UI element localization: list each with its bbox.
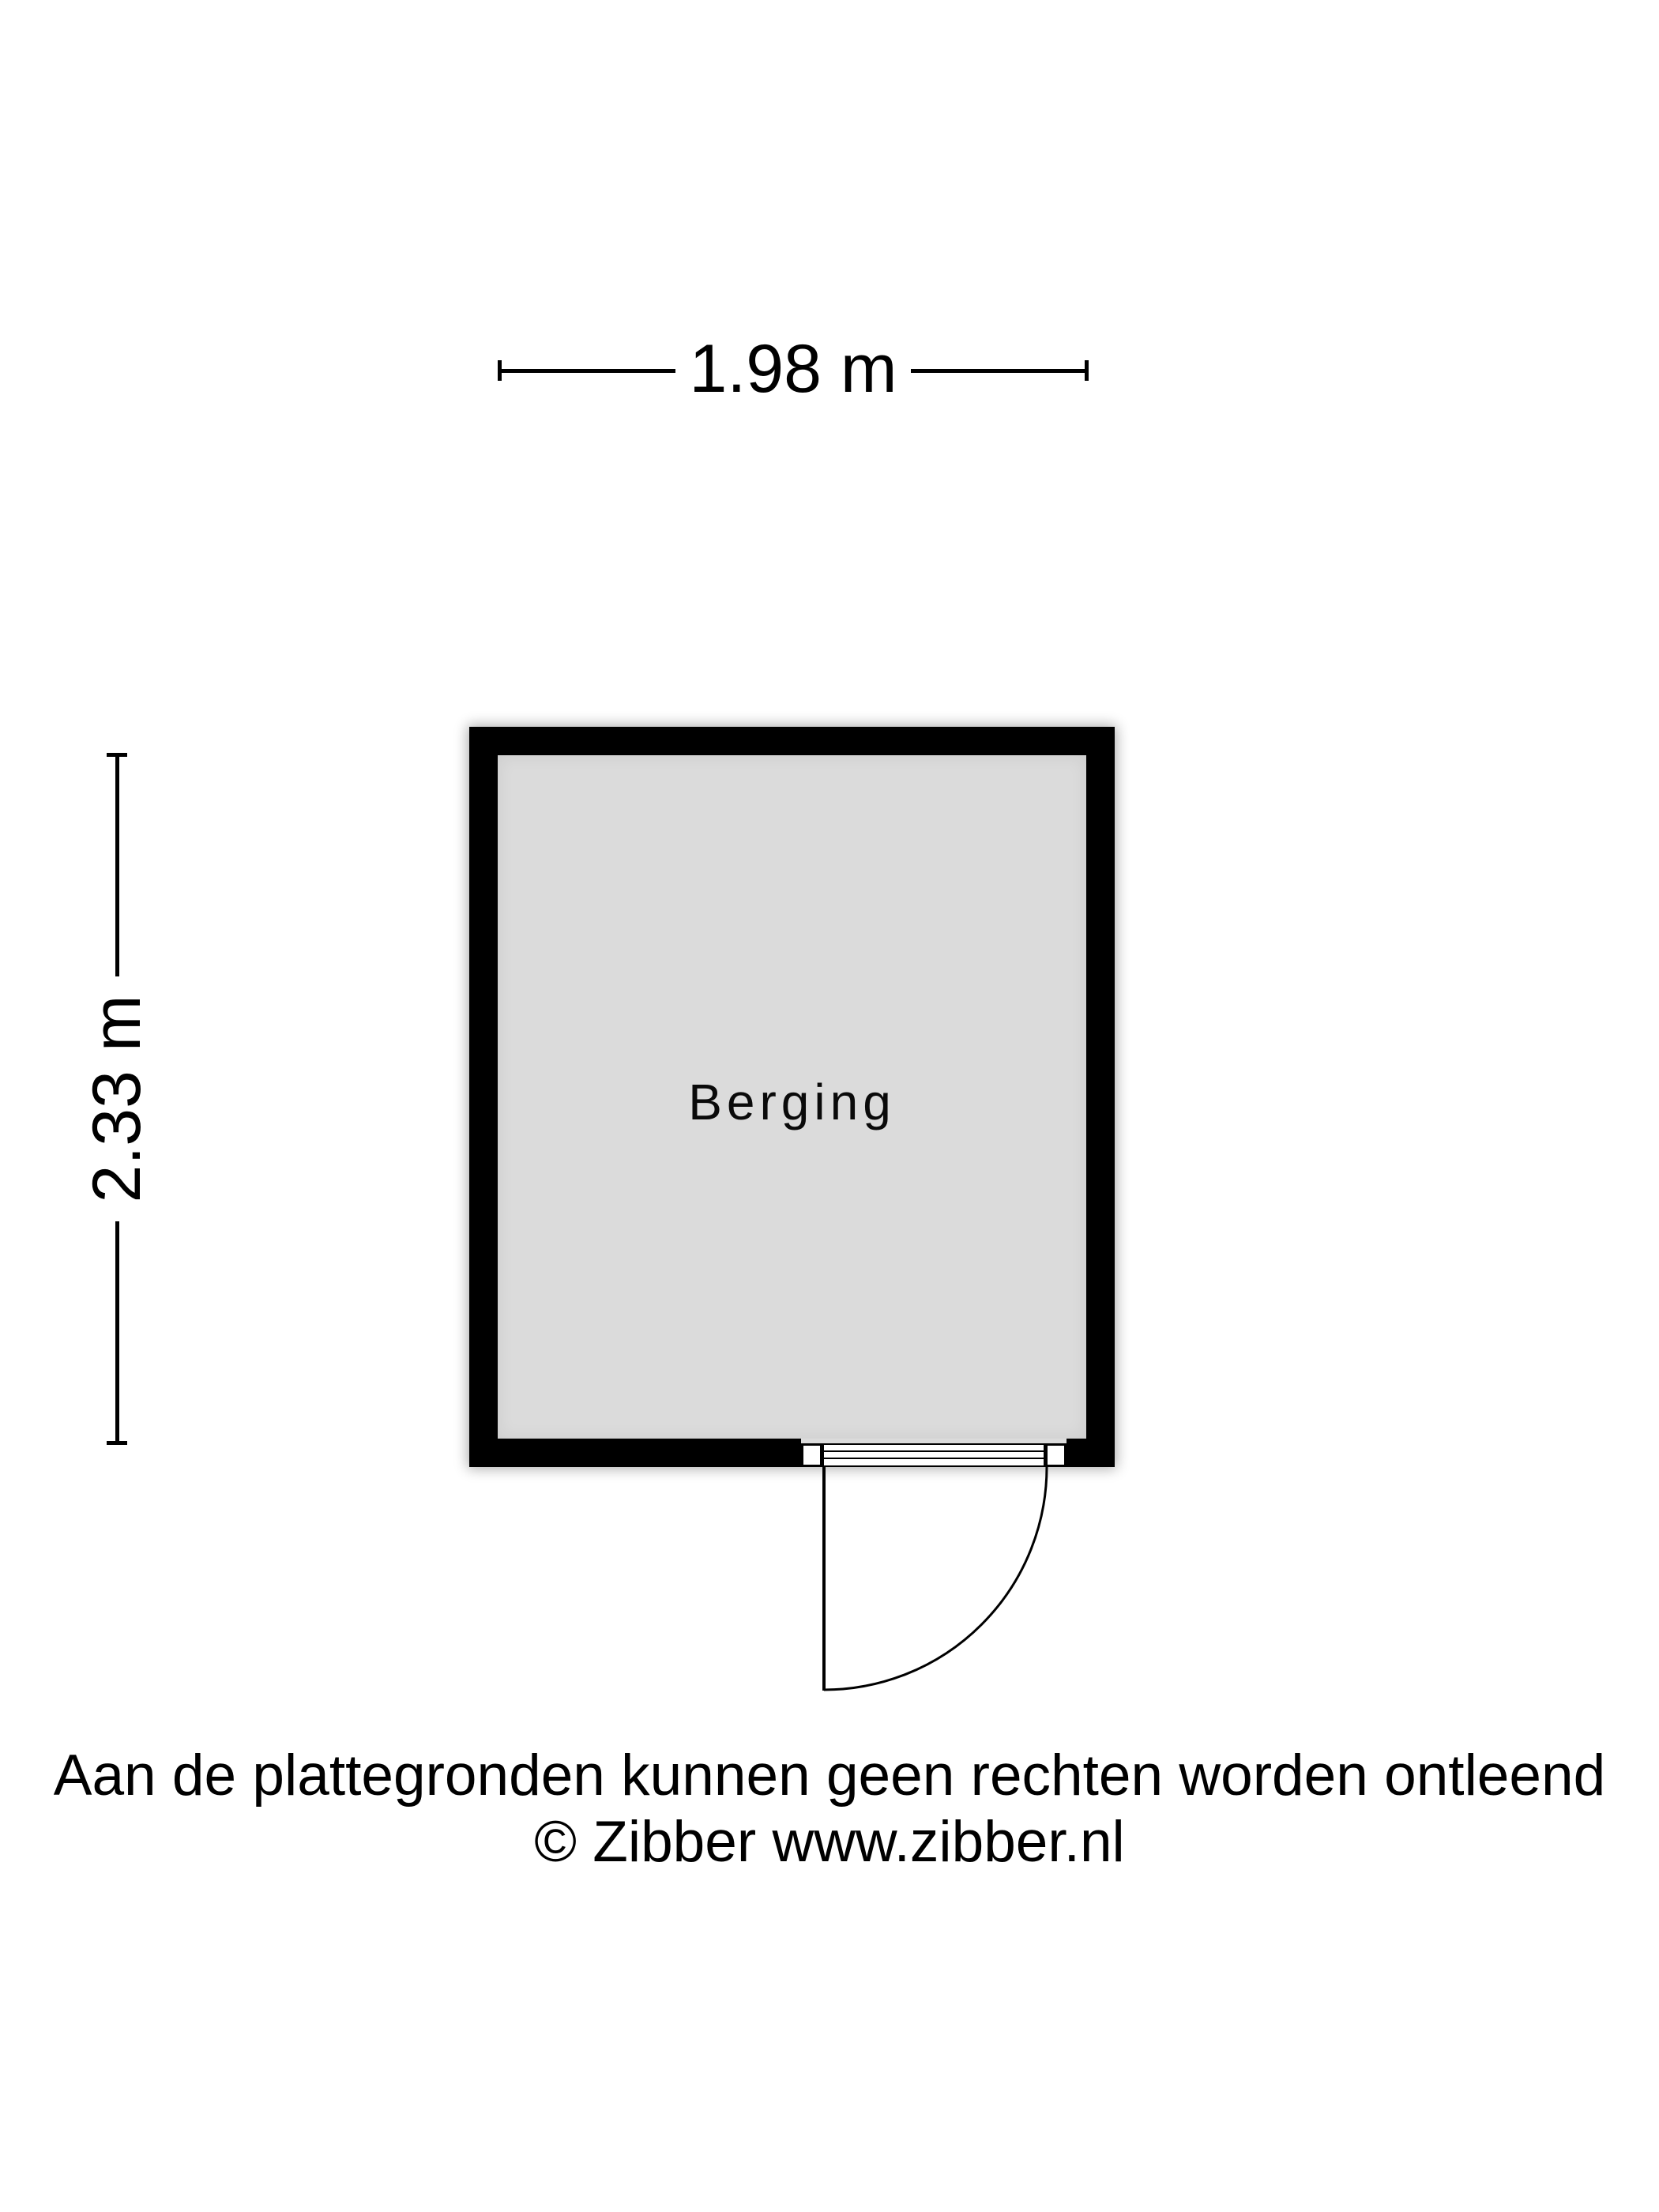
height-dimension: 2.33 m bbox=[73, 753, 161, 1445]
door-jamb-left bbox=[801, 1443, 822, 1467]
width-dimension-label: 1.98 m bbox=[690, 335, 897, 403]
footer-copyright: © Zibber www.zibber.nl bbox=[0, 1809, 1659, 1875]
dimension-tick-right bbox=[1085, 360, 1089, 381]
height-dimension-label: 2.33 m bbox=[83, 995, 151, 1203]
footer: Aan de plattegronden kunnen geen rechten… bbox=[0, 1743, 1659, 1875]
floorplan-canvas: 1.98 m 2.33 m Berging Aan de plattegrond… bbox=[0, 0, 1659, 2212]
width-dimension: 1.98 m bbox=[498, 326, 1089, 415]
dimension-tick-bottom bbox=[107, 1441, 127, 1445]
dimension-line-left-segment bbox=[502, 369, 675, 373]
threshold-line bbox=[824, 1458, 1044, 1459]
footer-disclaimer: Aan de plattegronden kunnen geen rechten… bbox=[0, 1743, 1659, 1809]
door-threshold bbox=[822, 1443, 1045, 1467]
room-label: Berging bbox=[688, 1077, 896, 1127]
threshold-line bbox=[824, 1450, 1044, 1452]
door-opening bbox=[801, 1439, 1066, 1467]
height-dimension-label-wrap: 2.33 m bbox=[73, 976, 161, 1221]
dimension-line-top-segment bbox=[115, 757, 119, 976]
door-jamb-right bbox=[1045, 1443, 1066, 1467]
door-arc bbox=[824, 1467, 1047, 1690]
room-berging: Berging bbox=[469, 727, 1115, 1467]
dimension-line-right-segment bbox=[911, 369, 1085, 373]
dimension-line-bottom-segment bbox=[115, 1221, 119, 1441]
